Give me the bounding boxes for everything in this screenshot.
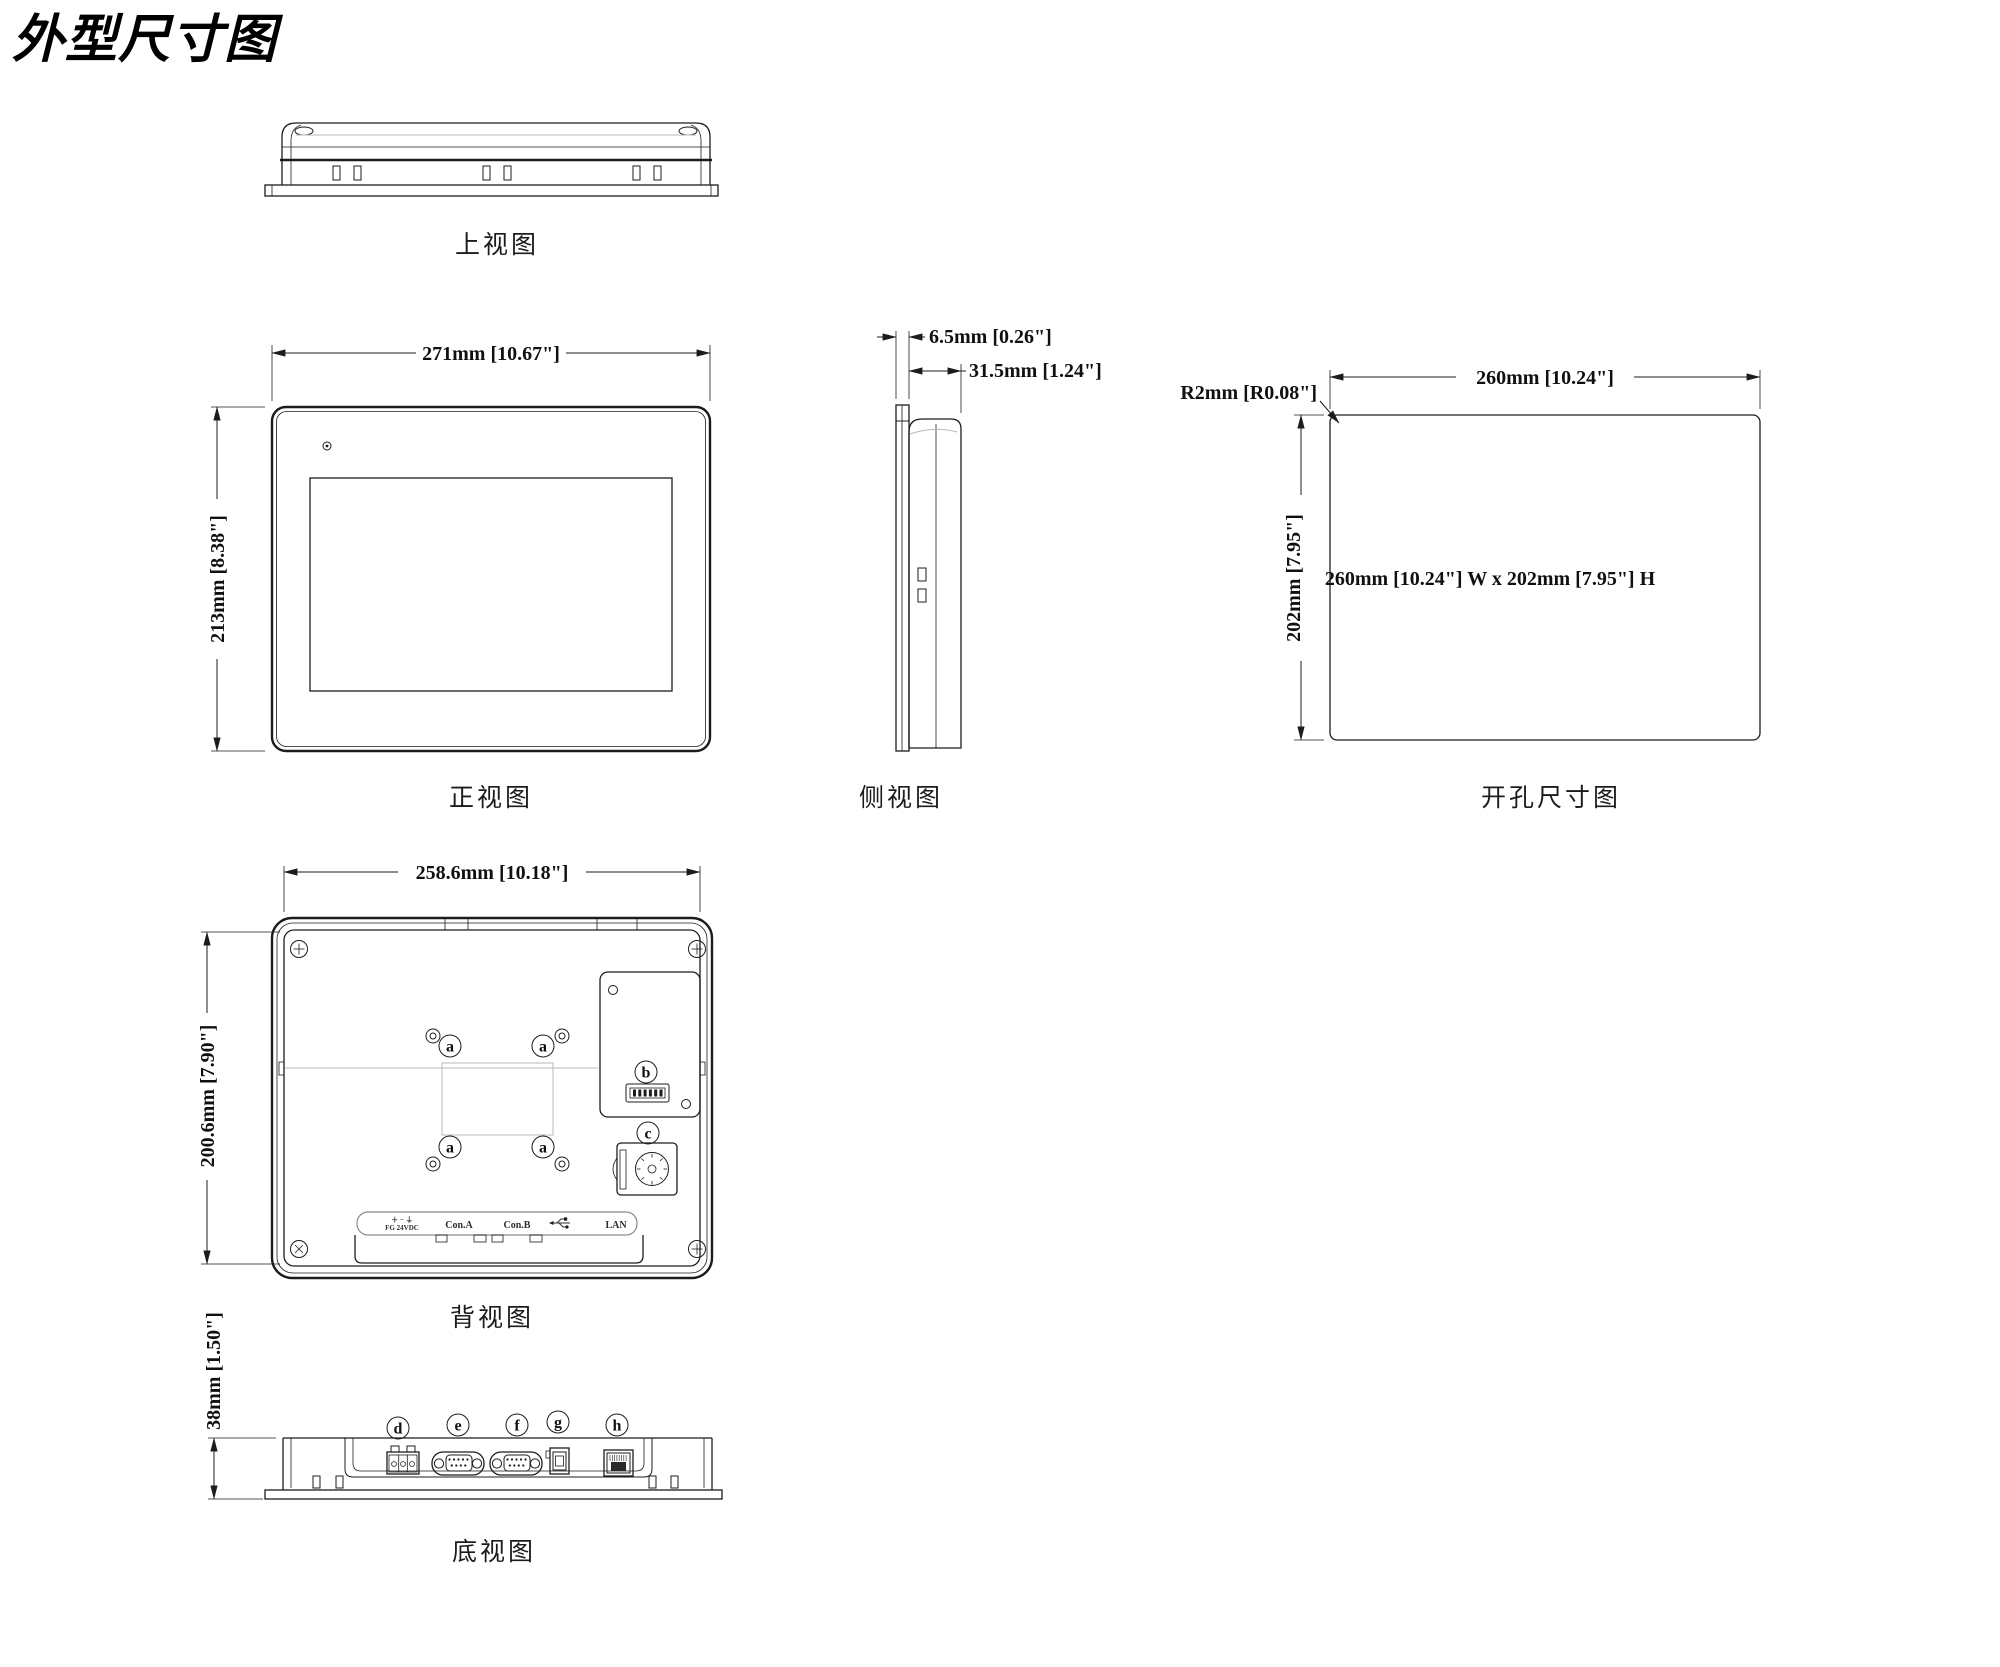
front-view-label: 正视图: [449, 784, 533, 812]
side-slot-2: [918, 589, 926, 602]
front-width-dimension: 271mm [10.67"]: [272, 343, 710, 401]
usb-icon: [549, 1217, 570, 1228]
callout-a: a: [532, 1136, 554, 1158]
top-view-outline: [282, 123, 710, 185]
svg-text:d: d: [394, 1421, 403, 1438]
svg-text:a: a: [446, 1039, 454, 1056]
com-b-label: Con.B: [504, 1220, 531, 1231]
lan-label: LAN: [605, 1220, 627, 1231]
svg-text:a: a: [446, 1140, 454, 1157]
vesa-hole: [426, 1029, 440, 1043]
usb-port: [546, 1448, 569, 1474]
vesa-hole: [426, 1157, 440, 1171]
front-view: 271mm [10.67"] 213mm [8.38"] 正视图: [207, 343, 710, 812]
back-width-dim-text: 258.6mm [10.18"]: [416, 862, 569, 884]
com-a-label: Con.A: [445, 1220, 473, 1231]
side-slot-1: [918, 568, 926, 581]
rotary-switch: [613, 1143, 677, 1195]
lan-port: [604, 1450, 633, 1476]
corner-screw: [689, 1241, 706, 1258]
vesa-hole: [555, 1029, 569, 1043]
cutout-width-dim-text: 260mm [10.24"]: [1476, 367, 1614, 389]
callout-e: e: [447, 1414, 469, 1436]
bottom-view: d e f g h 38mm [1.50"] 底视图: [203, 1312, 722, 1566]
svg-text:a: a: [539, 1039, 547, 1056]
top-front-bezel-edge: [265, 185, 718, 196]
serial-port-b: [490, 1452, 542, 1475]
front-width-dim-text: 271mm [10.67"]: [422, 343, 560, 365]
svg-text:g: g: [554, 1415, 562, 1432]
back-height-dimension: 200.6mm [7.90"]: [197, 932, 280, 1264]
power-terminal: [387, 1446, 419, 1474]
callout-c: c: [637, 1122, 659, 1144]
svg-text:a: a: [539, 1140, 547, 1157]
interface-panel: b: [600, 972, 700, 1117]
svg-text:b: b: [642, 1065, 651, 1082]
side-bezel-dim-text: 6.5mm [0.26"]: [929, 326, 1052, 348]
svg-text:h: h: [613, 1418, 622, 1435]
top-vent-slots: [333, 166, 661, 180]
panel-screw: [609, 986, 618, 995]
cutout-size-note: 260mm [10.24"] W x 202mm [7.95"] H: [1325, 568, 1656, 590]
serial-port-a: [432, 1452, 484, 1475]
cutout-view: 260mm [10.24"] W x 202mm [7.95"] H 260mm…: [1180, 367, 1760, 812]
callout-g: g: [547, 1411, 569, 1433]
cutout-height-dimension: 202mm [7.95"]: [1283, 415, 1324, 740]
svg-text:c: c: [644, 1126, 651, 1143]
dimension-drawing-page: 外型尺寸图 上视图 271mm [10.67"]: [0, 0, 2000, 1667]
bottom-depth-dimension: 38mm [1.50"]: [203, 1312, 276, 1499]
side-depth-dim-text: 31.5mm [1.24"]: [969, 360, 1102, 382]
svg-text:e: e: [454, 1418, 461, 1435]
cutout-width-dimension: 260mm [10.24"]: [1330, 367, 1760, 409]
power-symbols-label: ＋ − ⏚: [391, 1216, 413, 1224]
terminal-cover: [355, 1235, 643, 1263]
power-text-label: FG 24VDC: [385, 1224, 419, 1232]
callout-f: f: [506, 1414, 528, 1436]
bottom-view-label: 底视图: [452, 1538, 536, 1566]
top-screw-hole-left: [295, 127, 313, 135]
front-height-dim-text: 213mm [8.38"]: [207, 515, 229, 643]
callout-a: a: [532, 1035, 554, 1057]
screen: [310, 478, 672, 691]
side-body-profile: [909, 419, 961, 748]
callout-d: d: [387, 1417, 409, 1439]
callout-a: a: [439, 1136, 461, 1158]
callout-h: h: [606, 1414, 628, 1436]
corner-screw: [291, 941, 308, 958]
front-height-dimension: 213mm [8.38"]: [207, 407, 265, 751]
side-body-depth-dimension: 31.5mm [1.24"]: [909, 360, 1102, 413]
top-screw-hole-right: [679, 127, 697, 135]
svg-text:f: f: [514, 1418, 520, 1435]
cutout-radius-text: R2mm [R0.08"]: [1180, 382, 1317, 404]
back-width-dimension: 258.6mm [10.18"]: [284, 862, 700, 912]
dip-switch: [626, 1084, 669, 1102]
connector-legend: ＋ − ⏚ FG 24VDC Con.A Con.B LAN: [357, 1212, 637, 1235]
panel-screw: [682, 1100, 691, 1109]
cutout-view-label: 开孔尺寸图: [1481, 784, 1621, 812]
top-view: 上视图: [265, 123, 718, 259]
side-view: 6.5mm [0.26"] 31.5mm [1.24"] 侧视图: [859, 326, 1102, 812]
back-view-label: 背视图: [450, 1304, 534, 1332]
vesa-outline: [442, 1063, 553, 1135]
side-view-label: 侧视图: [859, 784, 943, 812]
bottom-bezel-edge: [265, 1490, 722, 1499]
corner-screws: [287, 941, 706, 1262]
callout-b: b: [635, 1061, 657, 1083]
cutout-radius-callout: R2mm [R0.08"]: [1180, 382, 1339, 423]
vesa-mount: a a a a: [426, 1029, 569, 1171]
cutout-height-dim-text: 202mm [7.95"]: [1283, 514, 1305, 642]
back-view: a a a a b c: [197, 862, 712, 1332]
corner-screw: [689, 941, 706, 958]
callout-a: a: [439, 1035, 461, 1057]
page-title: 外型尺寸图: [12, 12, 284, 69]
top-view-label: 上视图: [455, 231, 539, 259]
bottom-depth-dim-text: 38mm [1.50"]: [203, 1312, 225, 1430]
vesa-hole: [555, 1157, 569, 1171]
back-height-dim-text: 200.6mm [7.90"]: [197, 1025, 219, 1168]
front-bezel: [272, 407, 710, 751]
corner-screw: [287, 1237, 311, 1261]
side-bezel-profile: [896, 405, 909, 751]
